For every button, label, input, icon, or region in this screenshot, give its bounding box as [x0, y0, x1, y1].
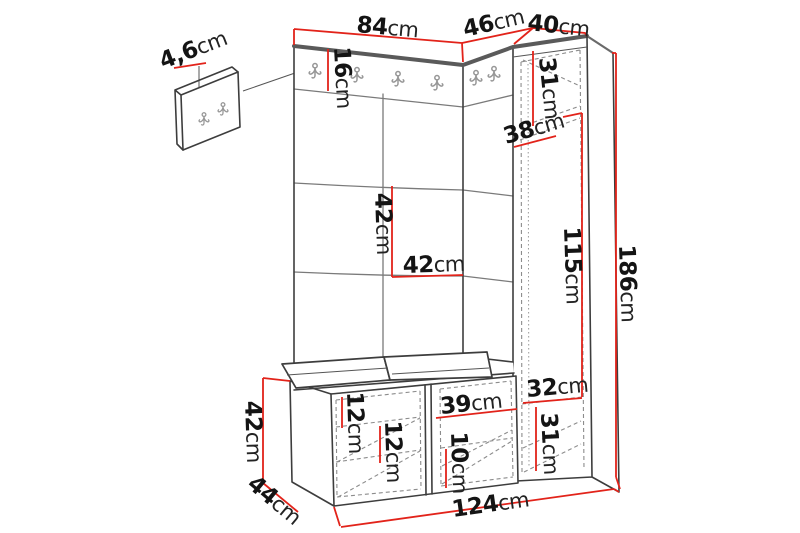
dim-label-wall-panel-depth: 4,6cm — [156, 25, 231, 74]
dim-label-cabinet-middle-height: 115cm — [558, 226, 587, 304]
leader-line-panel-to-rail — [243, 73, 295, 91]
dim-label-main-panel-width: 84cm — [355, 12, 419, 43]
furniture-dimension-diagram: 4,6cm 84cm 46cm 40cm 16cm 31cm 38cm 42cm… — [0, 0, 800, 533]
dim-label-hook-rail-height: 16cm — [328, 46, 357, 109]
diagram-svg: 4,6cm 84cm 46cm 40cm 16cm 31cm 38cm 42cm… — [0, 0, 800, 533]
seat-cushion — [384, 352, 492, 380]
dim-label-bench-height: 42cm — [239, 400, 267, 463]
wall-hook-panel — [175, 67, 240, 150]
dim-label-cabinet-bottom-height: 31cm — [535, 412, 564, 475]
dim-label-tile-height: 42cm — [369, 192, 397, 255]
dim-label-shelf-gap-bottom: 10cm — [445, 431, 473, 494]
corner-section — [463, 47, 513, 367]
dim-label-tile-width: 42cm — [402, 251, 465, 279]
bench-side — [290, 381, 334, 506]
dim-label-shelf-gap-top: 12cm — [341, 391, 369, 454]
dim-label-shelf-gap-middle: 12cm — [379, 420, 407, 483]
dim-label-total-height: 186cm — [613, 244, 642, 322]
dim-line-bench-height — [263, 378, 290, 483]
dim-label-cabinet-width: 40cm — [526, 10, 590, 42]
